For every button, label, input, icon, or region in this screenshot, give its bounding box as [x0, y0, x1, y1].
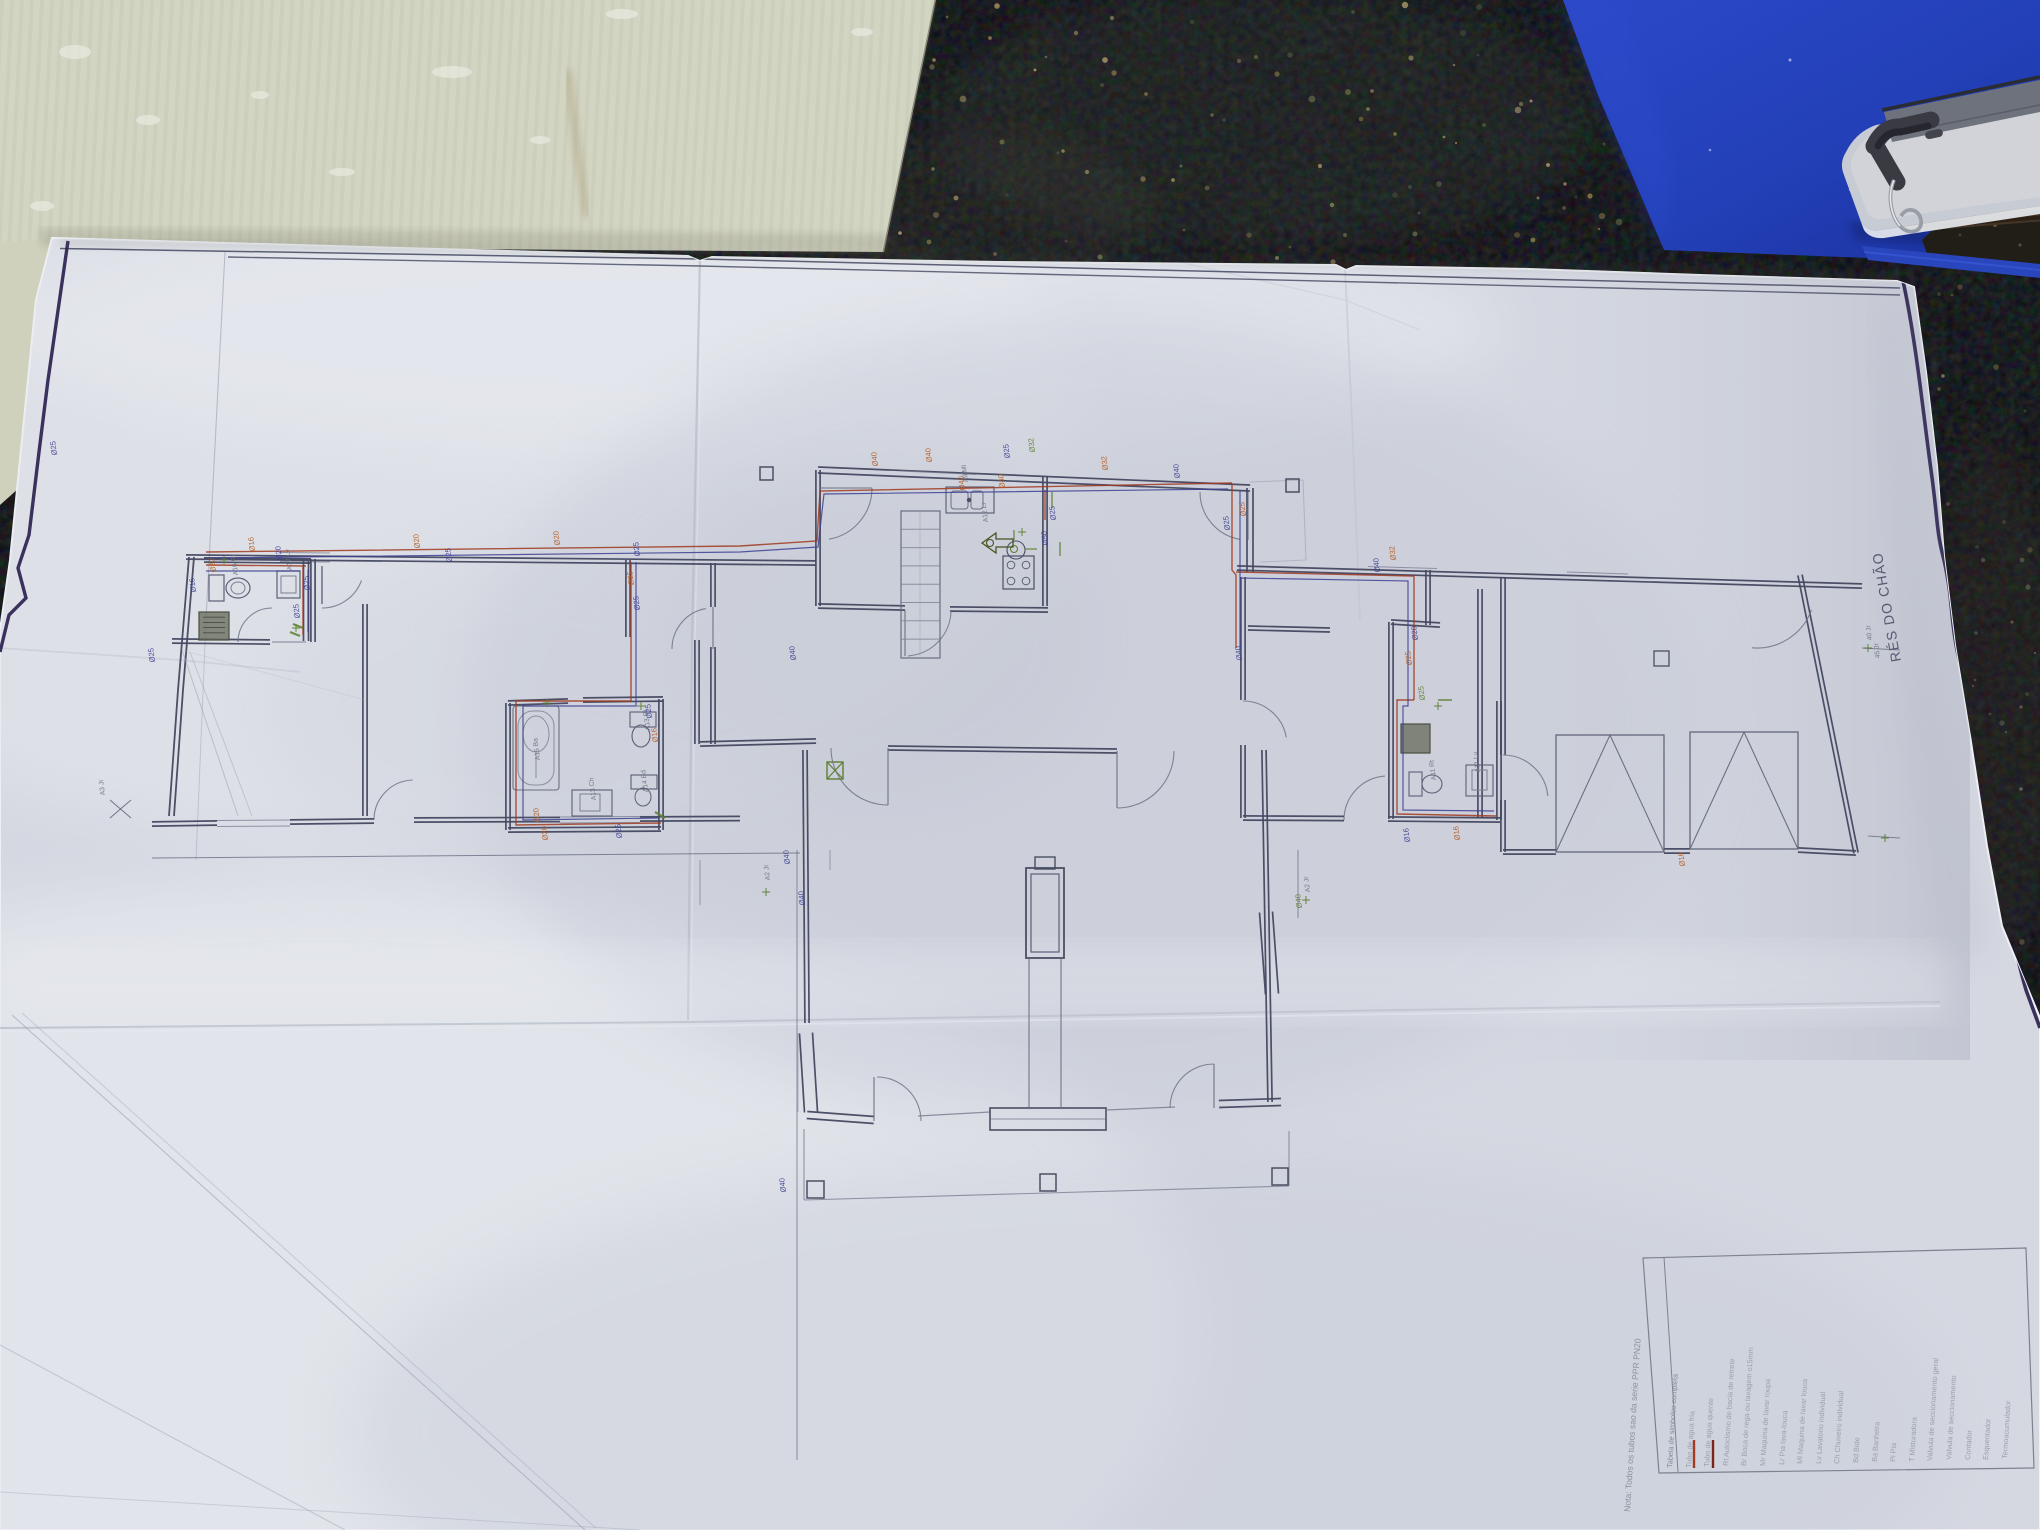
svg-text:Ø40: Ø40 — [1171, 464, 1182, 479]
svg-text:Ø40: Ø40 — [781, 850, 792, 865]
svg-text:Ø20: Ø20 — [207, 558, 218, 573]
svg-text:Ø25: Ø25 — [1001, 444, 1012, 459]
svg-text:Ø16: Ø16 — [187, 578, 198, 593]
svg-text:Ø25: Ø25 — [1403, 651, 1414, 666]
svg-text:Ø20: Ø20 — [539, 826, 550, 841]
svg-text:Ø32: Ø32 — [1099, 456, 1110, 471]
svg-text:Ø25: Ø25 — [1237, 502, 1248, 517]
svg-text:Ø25: Ø25 — [613, 824, 624, 839]
svg-text:Ø16: Ø16 — [246, 537, 257, 552]
svg-text:Ø40: Ø40 — [787, 646, 798, 661]
svg-text:Pi Pia: Pi Pia — [1888, 1442, 1898, 1463]
svg-text:Ø25: Ø25 — [1221, 516, 1232, 531]
svg-text:Ø25: Ø25 — [301, 576, 312, 591]
svg-text:Ø16: Ø16 — [1401, 828, 1412, 843]
svg-text:Ø40: Ø40 — [869, 452, 880, 467]
svg-text:Ø40: Ø40 — [777, 1178, 788, 1193]
svg-text:Ø20: Ø20 — [273, 546, 284, 561]
svg-text:Ø20: Ø20 — [531, 808, 542, 823]
svg-text:Contador: Contador — [1963, 1429, 1974, 1460]
svg-text:Ø16: Ø16 — [1451, 826, 1462, 841]
svg-text:Ø40: Ø40 — [1293, 894, 1304, 909]
svg-text:Ø25: Ø25 — [48, 441, 59, 456]
svg-text:Ø25: Ø25 — [631, 596, 642, 611]
svg-text:Ø20: Ø20 — [1409, 626, 1420, 641]
svg-text:Ø25: Ø25 — [1416, 686, 1427, 701]
svg-text:Ø16: Ø16 — [1676, 852, 1687, 867]
svg-text:Ø25: Ø25 — [1047, 506, 1058, 521]
svg-text:Ø25: Ø25 — [631, 542, 642, 557]
svg-text:Ø40: Ø40 — [923, 448, 934, 463]
svg-text:Ø20: Ø20 — [411, 534, 422, 549]
svg-text:Ø40: Ø40 — [796, 891, 807, 906]
svg-text:Ø32: Ø32 — [1026, 438, 1037, 453]
svg-text:Ø32: Ø32 — [1387, 546, 1398, 561]
svg-text:Ø25: Ø25 — [291, 604, 302, 619]
svg-text:Ø25: Ø25 — [625, 571, 636, 586]
svg-text:Ø40: Ø40 — [1233, 646, 1244, 661]
svg-text:Ø20: Ø20 — [551, 531, 562, 546]
svg-text:Ø25: Ø25 — [443, 548, 454, 563]
svg-text:Ø40: Ø40 — [996, 474, 1007, 489]
svg-text:Ø50: Ø50 — [1039, 531, 1050, 546]
svg-text:Ø40: Ø40 — [1371, 558, 1382, 573]
svg-text:Ø25: Ø25 — [146, 648, 157, 663]
svg-text:Bd Bide: Bd Bide — [1851, 1437, 1862, 1463]
